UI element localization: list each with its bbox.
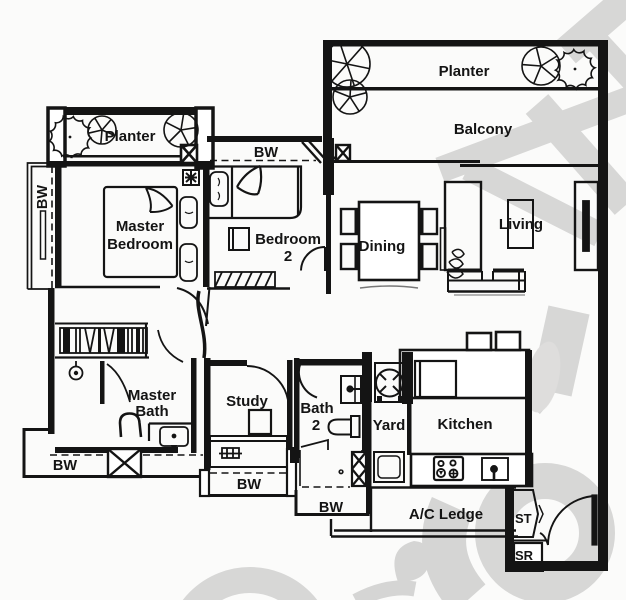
svg-text:ST: ST — [515, 511, 532, 526]
svg-text:Bath: Bath — [300, 400, 333, 417]
svg-text:A/C Ledge: A/C Ledge — [409, 506, 483, 523]
svg-text:Bedroom: Bedroom — [107, 236, 173, 253]
svg-text:Yard: Yard — [373, 417, 406, 434]
svg-text:Balcony: Balcony — [454, 121, 513, 138]
svg-text:BW: BW — [53, 458, 77, 474]
svg-text:BW: BW — [254, 145, 278, 161]
svg-text:Kitchen: Kitchen — [437, 416, 492, 433]
svg-text:Master: Master — [116, 218, 165, 235]
svg-text:Planter: Planter — [439, 63, 490, 80]
svg-text:Bath: Bath — [135, 403, 168, 420]
svg-text:Study: Study — [226, 393, 268, 410]
svg-text:BW: BW — [319, 500, 343, 516]
svg-text:Master: Master — [128, 387, 177, 404]
svg-text:Planter: Planter — [105, 128, 156, 145]
svg-text:2: 2 — [312, 417, 320, 434]
svg-text:Dining: Dining — [359, 238, 406, 255]
svg-text:BW: BW — [35, 185, 51, 209]
svg-text:SR: SR — [515, 548, 534, 563]
svg-text:BW: BW — [237, 477, 261, 493]
svg-text:Living: Living — [499, 216, 543, 233]
svg-text:Bedroom: Bedroom — [255, 231, 321, 248]
svg-text:2: 2 — [284, 248, 292, 265]
